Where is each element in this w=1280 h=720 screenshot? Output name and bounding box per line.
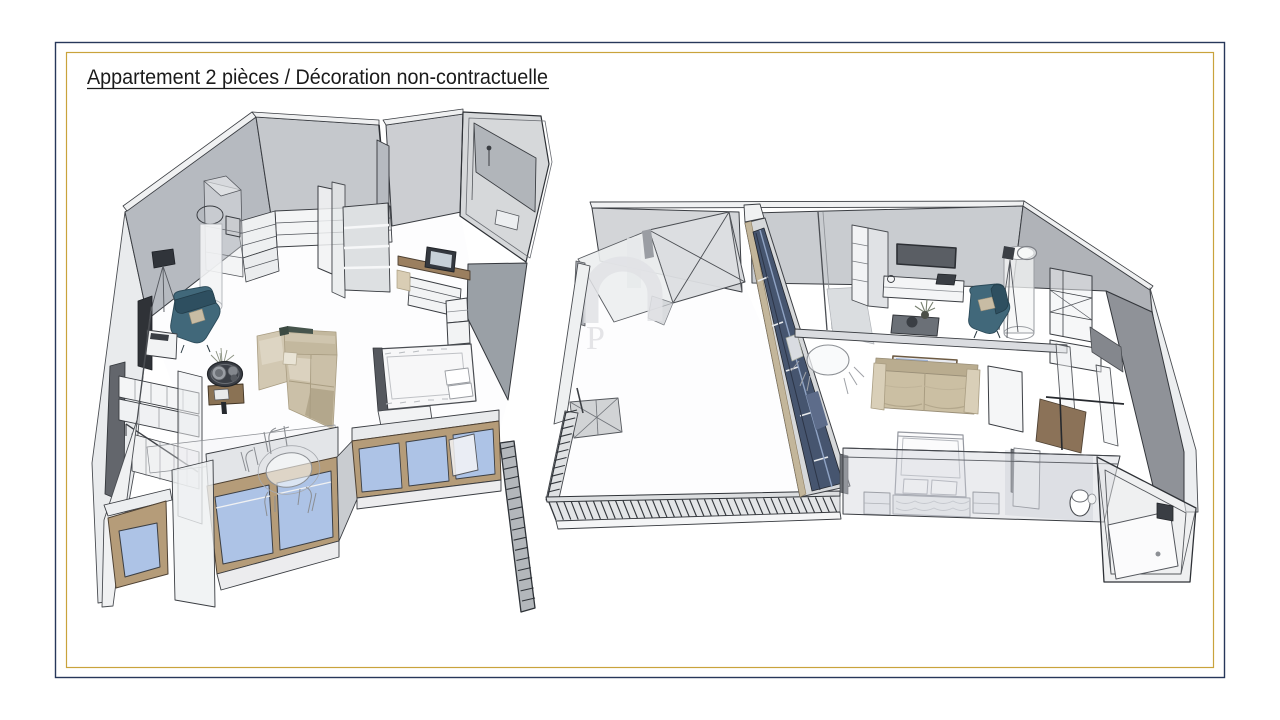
svg-text:P: P <box>586 320 605 357</box>
svg-text:Appartement 2 pièces / Décorat: Appartement 2 pièces / Décoration non-co… <box>87 65 548 89</box>
